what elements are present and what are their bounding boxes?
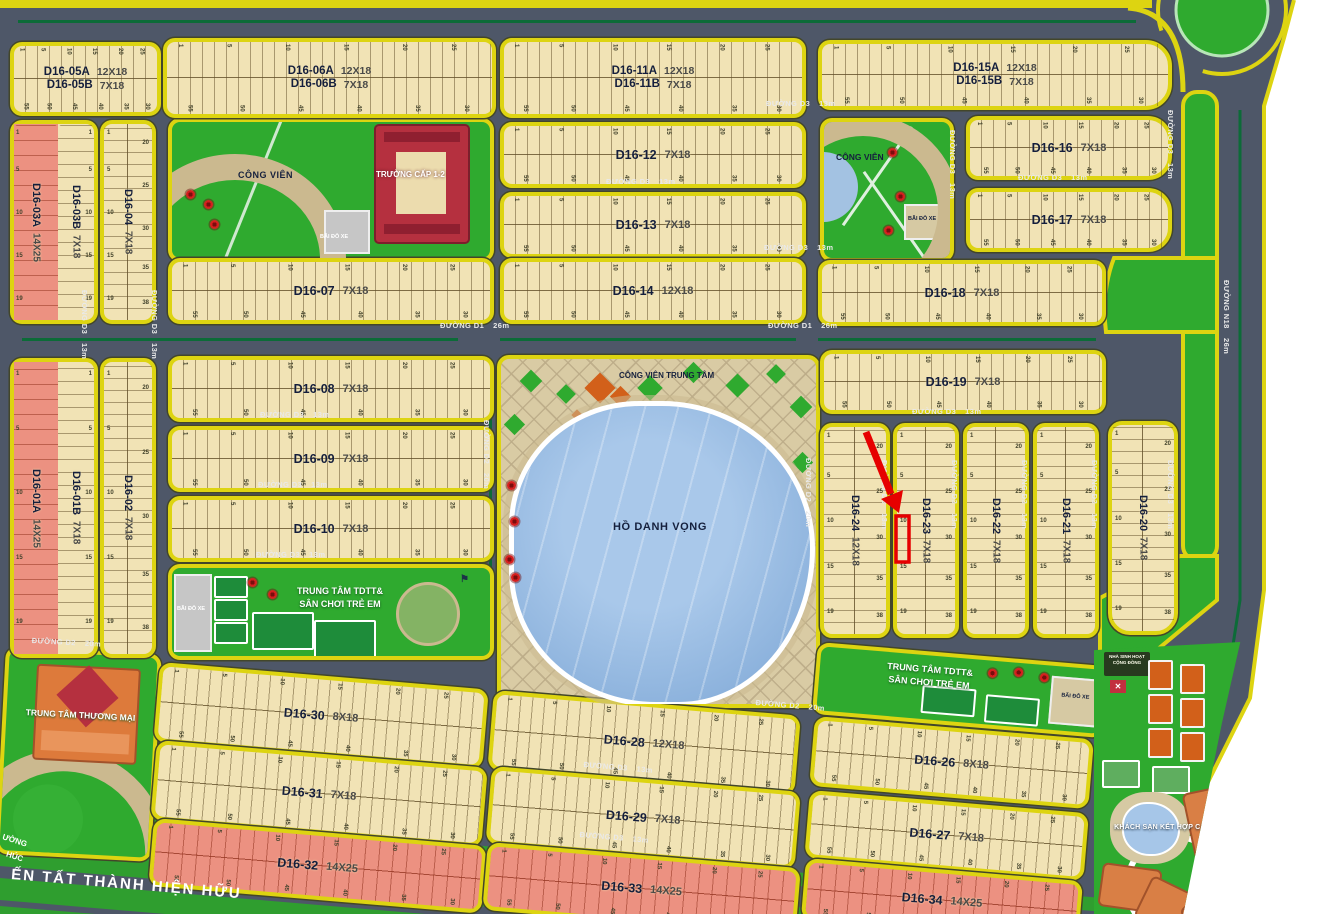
lake	[509, 401, 815, 707]
street-label-d1: ĐƯỜNG D126m	[768, 321, 837, 330]
street-label-d3: ĐƯỜNG D313m	[912, 407, 981, 416]
block-D16-16: 1510152025555045403530D16-167X18	[966, 116, 1172, 180]
block-D16-11A: 1510152025555045403530D16-11A12X18D16-11…	[500, 38, 806, 118]
block-D16-13: 1510152025555045403530D16-137X18	[500, 192, 806, 258]
central-park-label: CÔNG VIÊN TRUNG TÂM	[619, 371, 714, 380]
sports-center-1-label-2: SÂN CHƠI TRẺ EM	[252, 599, 428, 609]
block-D16-05A: 1510152025555045403530D16-05A12X18D16-05…	[10, 42, 161, 116]
d1-road-median	[22, 338, 1096, 341]
street-label-n18: ĐƯỜNG N1826m	[1222, 280, 1231, 354]
block-D16-21: 151015192025303538D16-217X18	[1033, 423, 1099, 638]
street-label-d3: ĐƯỜNG D313m	[766, 99, 835, 108]
block-D16-08: 1510152025555045403530D16-087X18	[168, 356, 494, 422]
block-D16-01A: D16-01A14X2515101519	[14, 362, 58, 654]
mall-area: TRUNG TÂM THƯƠNG MẠI	[0, 646, 162, 862]
parking-lot	[324, 210, 370, 254]
block-D16-01A: D16-01A14X2515101519D16-01B7X1815101519	[10, 358, 98, 658]
block-D16-01B: D16-01B7X1815101519	[58, 362, 94, 654]
block-D16-06A: 1510152025555045403530D16-06A12X18D16-06…	[163, 38, 496, 118]
parking-lot	[174, 574, 212, 652]
parking-label: BÃI ĐỖ XE	[320, 234, 348, 240]
top-road-median	[18, 20, 1136, 23]
park-east: CÔNG VIÊN BÃI ĐỖ XE	[820, 118, 954, 262]
street-label-d3: ĐƯỜNG D313m	[764, 243, 833, 252]
central-park: CÔNG VIÊN TRUNG TÂM HỒ DANH VỌNG	[497, 355, 820, 708]
block-D16-14: 1510152025555045403530D16-1412X18	[500, 258, 806, 324]
block-D16-02: 151015192025303538D16-027X18	[100, 358, 156, 658]
street-label-d2: ĐƯỜNG D220m	[804, 458, 813, 527]
street-label-d3: ĐƯỜNG D313m	[260, 410, 329, 419]
block-D16-10: 1510152025555045403530D16-107X18	[168, 496, 494, 562]
street-label-d3: ĐƯỜNG D313m	[256, 550, 325, 559]
block-D16-04: 151015192025303538D16-047X18	[100, 120, 156, 324]
street-label-d1: ĐƯỜNG D126m	[440, 321, 509, 330]
parking-lot	[1048, 676, 1102, 728]
block-D16-17: 1510152025555045403530D16-177X18	[966, 188, 1172, 252]
street-label-d3: ĐƯỜNG D313m	[80, 290, 89, 359]
street-label-d3: ĐƯỜNG D313m	[950, 460, 959, 529]
street-label-d3: ĐƯỜNG D313m	[1020, 460, 1029, 529]
street-label-d3: ĐƯỜNG D313m	[1090, 460, 1099, 529]
school-label: TRƯỜNG CẤP 1-2	[376, 170, 445, 179]
park-west-label: CÔNG VIÊN	[238, 170, 293, 180]
street-label-d3: ĐƯỜNG D313m	[880, 460, 889, 529]
block-D16-15A: 1510152025555045403530D16-15A12X18D16-15…	[818, 40, 1172, 110]
block-D16-19: 1510152025555045403530D16-197X18	[820, 350, 1106, 414]
park-east-label: CÔNG VIÊN	[836, 152, 884, 162]
map-canvas: CÔNG VIÊN BÃI ĐỖ XE TRƯỜNG CẤP 1-2 CÔNG …	[0, 0, 1317, 914]
block-D16-22: 151015192025303538D16-227X18	[963, 423, 1029, 638]
street-label-d3: ĐƯỜNG D313m	[1166, 110, 1175, 179]
street-label-d3: ĐƯỜNG D313m	[1018, 173, 1087, 182]
sports-center-1: ⚑ BÃI ĐỖ XE TRUNG TÂM TDTT& SÂN CHƠI TRẺ…	[168, 564, 494, 660]
community-house-icon: ✕	[1110, 680, 1126, 693]
top-curb	[0, 0, 1152, 8]
block-D16-07: 1510152025555045403530D16-077X18	[168, 258, 494, 324]
flag-icon: ⚑	[460, 574, 469, 585]
sports-center-1-label-1: TRUNG TÂM TDTT&	[252, 586, 428, 596]
block-D16-18: 1510152025555045403530D16-187X18	[818, 260, 1106, 326]
street-label-d3: ĐƯỜNG D313m	[258, 480, 327, 489]
block-D16-09: 1510152025555045403530D16-097X18	[168, 426, 494, 492]
parking-label: BÃI ĐỖ XE	[908, 216, 936, 222]
street-label-d3: ĐƯỜNG D313m	[150, 290, 159, 359]
block-D16-23: 151015192025303538D16-237X18	[893, 423, 959, 638]
street-label-d3: ĐƯỜNG D313m	[948, 130, 957, 199]
parking-label: BÃI ĐỖ XE	[172, 606, 210, 612]
street-label-d2: ĐƯỜNG D220m	[482, 420, 491, 489]
community-house-label: NHÀ SINH HOẠT CỘNG ĐỒNG	[1104, 652, 1150, 676]
block-D16-03A: D16-03A14X2515101519	[14, 124, 58, 320]
park-west: CÔNG VIÊN BÃI ĐỖ XE TRƯỜNG CẤP 1-2	[168, 118, 494, 262]
park-path-ring	[820, 118, 954, 262]
street-label-d3: ĐƯỜNG D313m	[1166, 460, 1175, 529]
street-label-d3: ĐƯỜNG D313m	[606, 177, 675, 186]
school-building	[374, 124, 470, 244]
lake-label: HỒ DANH VỌNG	[613, 521, 707, 533]
block-D16-24: 151015192025303538D16-2412X18	[820, 423, 890, 638]
